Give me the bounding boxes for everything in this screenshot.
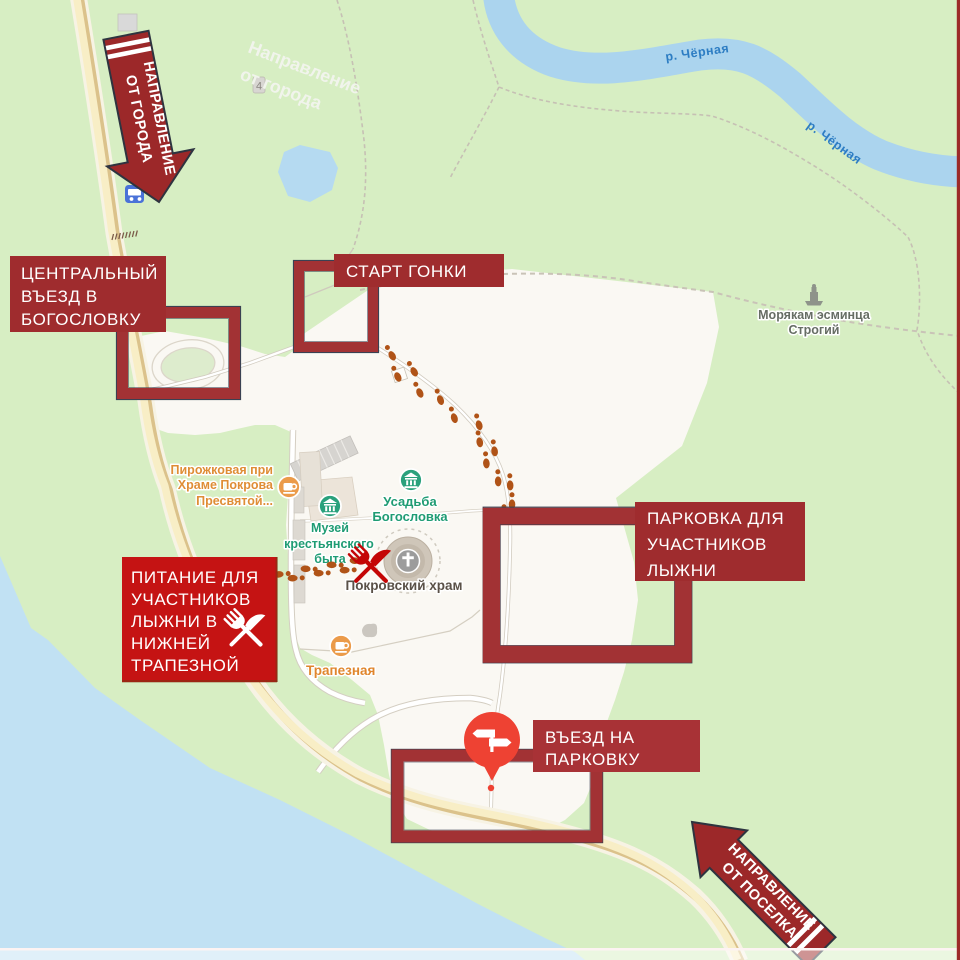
svg-text:Богословка: Богословка (372, 509, 448, 524)
svg-text:ЛЫЖНИ В: ЛЫЖНИ В (131, 612, 218, 631)
svg-text:ЛЫЖНИ: ЛЫЖНИ (647, 561, 716, 580)
svg-text:СТАРТ ГОНКИ: СТАРТ ГОНКИ (346, 262, 467, 281)
svg-text:Храме Покрова: Храме Покрова (178, 478, 274, 492)
svg-text:БОГОСЛОВКУ: БОГОСЛОВКУ (21, 310, 141, 329)
svg-text:Пирожковая при: Пирожковая при (171, 463, 273, 477)
svg-text:Покровский храм: Покровский храм (345, 578, 462, 593)
svg-text:Музей: Музей (311, 521, 349, 535)
svg-text:УЧАСТНИКОВ: УЧАСТНИКОВ (131, 590, 251, 609)
svg-text:ПИТАНИЕ ДЛЯ: ПИТАНИЕ ДЛЯ (131, 568, 259, 587)
svg-text:ВЪЕЗД НА: ВЪЕЗД НА (545, 728, 635, 747)
svg-text:крестьянского: крестьянского (284, 537, 374, 551)
svg-text:Усадьба: Усадьба (383, 494, 437, 509)
svg-text:Морякам эсминца: Морякам эсминца (758, 308, 871, 322)
svg-text:ВЪЕЗД В: ВЪЕЗД В (21, 287, 98, 306)
svg-text:ПАРКОВКА ДЛЯ: ПАРКОВКА ДЛЯ (647, 509, 784, 528)
svg-text:ЦЕНТРАЛЬНЫЙ: ЦЕНТРАЛЬНЫЙ (21, 264, 158, 283)
svg-text:УЧАСТНИКОВ: УЧАСТНИКОВ (647, 535, 767, 554)
svg-text:ТРАПЕЗНОЙ: ТРАПЕЗНОЙ (131, 656, 239, 675)
svg-text:Трапезная: Трапезная (306, 663, 375, 678)
svg-text:Строгий: Строгий (789, 323, 840, 337)
svg-text:Пресвятой...: Пресвятой... (196, 494, 273, 508)
svg-text:ПАРКОВКУ: ПАРКОВКУ (545, 750, 640, 769)
svg-text:НИЖНЕЙ: НИЖНЕЙ (131, 634, 211, 653)
